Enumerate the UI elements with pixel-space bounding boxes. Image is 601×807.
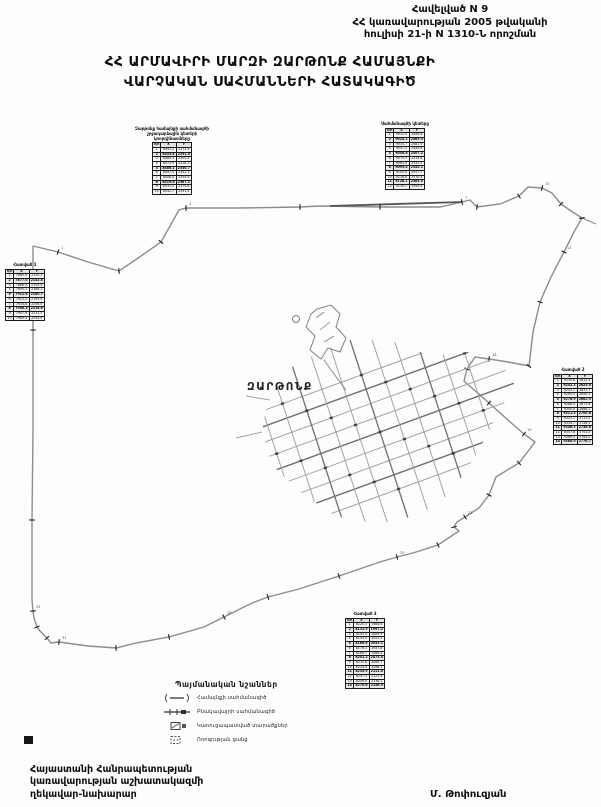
table-cell: 10 bbox=[153, 190, 161, 195]
boundary-point-number: 34 bbox=[36, 605, 41, 609]
table-grid: հ/հXY18441.22273.528453.82291.038460.323… bbox=[152, 142, 192, 194]
table-cell: 8542.7 bbox=[161, 190, 176, 195]
enclave-hatch bbox=[324, 336, 334, 342]
boundary-point-number: 25 bbox=[400, 551, 404, 555]
table-caption: Սահմանագծի կետերը bbox=[377, 122, 433, 127]
boundary-point-number: 10 bbox=[545, 182, 549, 186]
boundary-tick bbox=[451, 526, 456, 527]
boundary-tick bbox=[579, 218, 585, 219]
table-row: 108542.72391.4 bbox=[153, 190, 192, 195]
building-block bbox=[439, 345, 443, 348]
legend-item-label: Ոռոգության ցանց bbox=[197, 737, 248, 743]
boundary-point-ticks: 147101316192225283134 bbox=[29, 182, 585, 651]
coordinate-table-5: Հատված 3հ/հXY18120.31984.628131.91997.23… bbox=[343, 612, 387, 689]
community-boundary-icon bbox=[163, 693, 191, 703]
irrigation-network-icon bbox=[163, 735, 191, 745]
legend-item: Բնակավայրի սահմանագիծ bbox=[163, 707, 353, 717]
table-grid: հ/հXY17865.42130.227877.02142.837888.521… bbox=[5, 269, 45, 321]
community-boundary-line bbox=[32, 187, 582, 648]
boundary-point-number: 7 bbox=[465, 196, 467, 200]
legend-item-label: Կառուցապատված տարածքներ bbox=[197, 723, 288, 729]
street-line bbox=[310, 353, 371, 539]
boundary-point-number: 31 bbox=[62, 636, 66, 640]
boundary-tick bbox=[541, 185, 542, 190]
canal-line bbox=[324, 360, 346, 390]
settlement-boundary-icon bbox=[163, 707, 191, 717]
boundary-point-number: 28 bbox=[227, 611, 231, 615]
scan-corner-mark bbox=[24, 736, 33, 744]
building-block bbox=[397, 487, 401, 490]
document-page: Հավելված N 9 ՀՀ կառավարության 2005 թվակա… bbox=[0, 0, 601, 807]
table-cell: 2148.9 bbox=[369, 684, 384, 689]
table-row: 107969.42243.9 bbox=[6, 316, 45, 321]
building-block bbox=[293, 509, 297, 512]
road-tail bbox=[236, 432, 262, 438]
table-caption: Հատված 3 bbox=[343, 612, 387, 617]
table-cell: 10 bbox=[6, 316, 14, 321]
table-caption: Զարթոնք համայնքի սահմանագծի շրջադարձային… bbox=[133, 127, 211, 141]
table-grid: հ/հXY18120.31984.628131.91997.238143.420… bbox=[345, 618, 385, 689]
building-block bbox=[324, 466, 328, 469]
signature-name: Մ. Թոփուզյան bbox=[430, 789, 506, 800]
building-block bbox=[360, 373, 364, 376]
table-cell: 7969.4 bbox=[14, 316, 29, 321]
signatory-line-1: Հայաստանի Հանրապետության bbox=[30, 764, 203, 776]
table-grid: հ/հXY19230.62612.429242.22625.039253.726… bbox=[553, 374, 593, 445]
legend-title: Պայմանական նշաններ bbox=[175, 680, 353, 689]
boundary-point-number: 4 bbox=[189, 202, 192, 206]
coordinate-table-3: Հատված 1հ/հXY17865.42130.227877.02142.83… bbox=[5, 263, 45, 321]
road-tail bbox=[246, 396, 270, 400]
boundary-point-number: 19 bbox=[527, 428, 531, 432]
table-cell: 2391.4 bbox=[176, 190, 191, 195]
building-block bbox=[481, 409, 485, 412]
table-row: 129139.72595.6 bbox=[386, 184, 425, 189]
building-block bbox=[408, 388, 412, 391]
legend-item: Համայնքի սահմանագիծ bbox=[163, 693, 353, 703]
table-cell: 14 bbox=[554, 440, 562, 445]
enclave-parcel bbox=[306, 305, 346, 359]
boundary-tick bbox=[267, 594, 269, 599]
table-cell: 2776.7 bbox=[577, 440, 592, 445]
building-block bbox=[476, 459, 480, 462]
enclave-circle bbox=[293, 316, 300, 323]
street-line bbox=[330, 346, 391, 532]
boundary-tick bbox=[30, 611, 36, 612]
enclave-hatch bbox=[316, 312, 324, 318]
boundary-tick bbox=[461, 199, 462, 204]
street-line bbox=[251, 375, 312, 561]
signatory-block: Հայաստանի Հանրապետության կառավարության ա… bbox=[30, 764, 203, 801]
street-line bbox=[448, 303, 509, 489]
legend-item-label: Համայնքի սահմանագիծ bbox=[197, 695, 267, 701]
legend-item: Ոռոգության ցանց bbox=[163, 735, 353, 745]
boundary-point-number: 13 bbox=[567, 246, 571, 250]
boundary-point-number: 1 bbox=[61, 246, 63, 250]
boundary-tick bbox=[477, 204, 478, 210]
building-block bbox=[433, 395, 437, 398]
table-row: 149380.92776.7 bbox=[554, 440, 593, 445]
street-line bbox=[389, 324, 450, 510]
village-street-grid bbox=[225, 303, 535, 561]
street-line bbox=[369, 332, 430, 518]
building-block bbox=[318, 516, 322, 519]
street-line bbox=[409, 317, 470, 503]
boundary-point-number: 22 bbox=[468, 511, 472, 515]
coordinate-table-1: Զարթոնք համայնքի սահմանագծի շրջադարձային… bbox=[133, 127, 211, 195]
building-block bbox=[275, 452, 279, 455]
settlement-label: ԶԱՐԹՈՆՔ bbox=[247, 381, 313, 393]
signatory-line-3: ղեկավար-նախարար bbox=[30, 789, 203, 801]
boundary-point-number: 16 bbox=[492, 353, 496, 357]
table-caption: Հատված 2 bbox=[552, 368, 594, 373]
building-block bbox=[354, 423, 358, 426]
enclave-hatch bbox=[320, 322, 330, 330]
table-cell: 9380.9 bbox=[562, 440, 577, 445]
building-block bbox=[329, 416, 333, 419]
boundary-tick bbox=[57, 249, 59, 254]
built-up-area-icon bbox=[163, 721, 191, 731]
building-block bbox=[427, 445, 431, 448]
signatory-line-2: կառավարության աշխատակազմի bbox=[30, 776, 203, 788]
table-caption: Հատված 1 bbox=[10, 263, 40, 268]
coordinate-table-4: Հատված 2հ/հXY19230.62612.429242.22625.03… bbox=[552, 368, 594, 445]
legend-item: Կառուցապատված տարածքներ bbox=[163, 721, 353, 731]
table-cell: 12 bbox=[386, 184, 394, 189]
map-legend: Պայմանական նշաններ Համայնքի սահմանագիծ Բ… bbox=[163, 680, 353, 745]
road-line bbox=[330, 202, 462, 206]
boundary-tail bbox=[582, 218, 596, 224]
boundary-tick bbox=[168, 634, 169, 639]
boundary-tick bbox=[396, 554, 397, 559]
building-block bbox=[348, 473, 352, 476]
boundary-tick bbox=[119, 268, 120, 274]
table-cell: 2595.6 bbox=[409, 184, 424, 189]
building-block bbox=[281, 402, 285, 405]
table-grid: հ/հXY19012.52456.829024.12469.339035.724… bbox=[385, 128, 425, 190]
building-block bbox=[402, 438, 406, 441]
table-cell: 2243.9 bbox=[29, 316, 44, 321]
table-cell: 9139.7 bbox=[394, 184, 409, 189]
table-cell: 8270.6 bbox=[354, 684, 369, 689]
legend-item-label: Բնակավայրի սահմանագիծ bbox=[197, 709, 275, 715]
coordinate-table-2: Սահմանագծի կետերըհ/հXY19012.52456.829024… bbox=[377, 122, 433, 190]
